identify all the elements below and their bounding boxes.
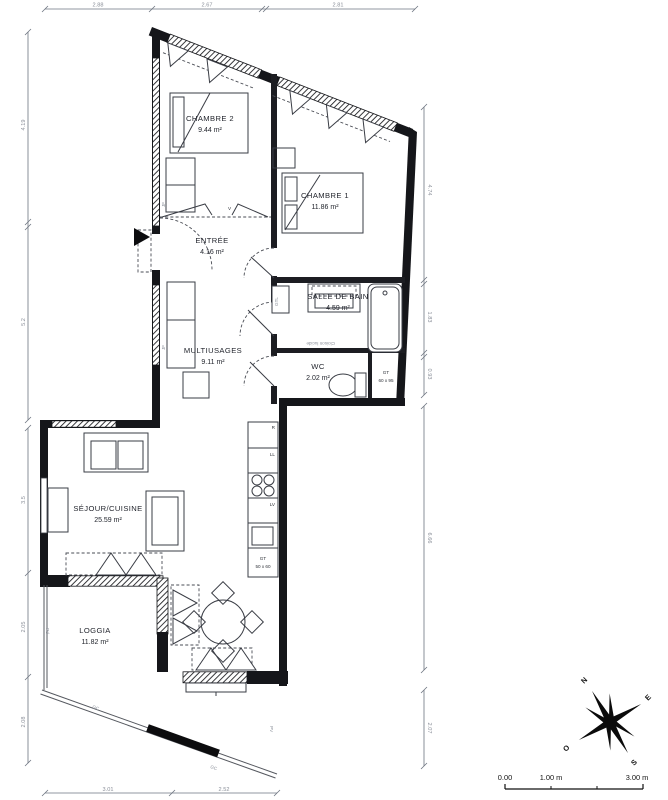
floor-plan-page: 2.88 2.67 2.81 4.19 5.2 3.5 2.05 2.08 4.…	[0, 0, 668, 800]
label-gt-wc: GT	[383, 370, 390, 375]
dim-bottom-1: 3.01	[103, 787, 114, 793]
armchair	[146, 491, 184, 551]
dim-right-2: 1.83	[426, 312, 432, 323]
dim-right-3: 0.93	[426, 369, 432, 380]
compass-e: E	[643, 693, 653, 703]
room-label-sejour: SÉJOUR/CUISINE	[73, 504, 142, 513]
label-jf-1: JF	[161, 202, 166, 207]
side-table	[48, 488, 68, 532]
dim-left-5: 2.08	[21, 717, 27, 728]
label-cloison: Cloison lucide	[306, 341, 335, 346]
dim-right-1: 4.74	[426, 185, 432, 196]
compass-rose-icon: N E S O	[561, 673, 659, 771]
label-washer: LL	[270, 452, 276, 457]
railing-solid-segment	[148, 728, 219, 754]
wc-fixtures: GT 60 x 95	[329, 370, 394, 397]
room-area-chambre1: 11.86 m²	[311, 204, 339, 211]
scale-bar: 0.00 1.00 m 3.00 m	[498, 773, 649, 789]
dim-top-3: 2.81	[333, 3, 344, 9]
compass-s: S	[629, 758, 639, 768]
floor-plan-drawing: 2.88 2.67 2.81 4.19 5.2 3.5 2.05 2.08 4.…	[0, 0, 668, 800]
dim-left-1: 4.19	[21, 120, 27, 131]
compass-o: O	[561, 743, 572, 754]
label-pd: Pd	[45, 628, 50, 634]
room-label-loggia: LOGGIA	[79, 626, 111, 635]
kitchen-counter: R LL LV GT 50 x 60	[248, 422, 278, 577]
dim-top-2: 2.67	[202, 3, 213, 9]
room-area-sejour: 25.59 m²	[94, 517, 122, 524]
dim-left-3: 3.5	[21, 496, 27, 504]
room-area-sdb: 4.59 m²	[326, 305, 350, 312]
label-gtl: GTL	[274, 297, 279, 306]
scale-zero: 0.00	[498, 773, 512, 782]
room-area-loggia: 11.82 m²	[81, 639, 109, 646]
room-label-entree: ENTRÉE	[195, 236, 228, 245]
room-label-sdb: SALLE DE BAIN	[307, 292, 368, 301]
entry-arrow-icon	[134, 228, 150, 246]
dim-left-4: 2.05	[21, 622, 27, 633]
room-label-multiusages: MULTIUSAGES	[184, 346, 242, 355]
label-v-door: V	[228, 206, 232, 211]
label-gc-2: GC	[210, 764, 219, 771]
room-label-chambre1: CHAMBRE 1	[301, 191, 349, 200]
bed-chambre1	[282, 173, 363, 233]
label-jf-2: JF	[161, 345, 166, 350]
scale-one: 1.00 m	[540, 773, 563, 782]
room-area-chambre2: 9.44 m²	[198, 127, 222, 134]
window-door-symbols: V	[66, 43, 390, 696]
table-multiusages	[183, 372, 209, 398]
label-pv: PV	[269, 726, 274, 733]
room-area-multiusages: 9.11 m²	[201, 359, 225, 366]
dim-bottom-2: 2.52	[219, 787, 230, 793]
bed-chambre2	[170, 93, 248, 153]
label-gt-wc-size: 60 x 95	[378, 378, 394, 383]
compass-n: N	[579, 675, 589, 685]
room-area-entree: 4.16 m²	[200, 249, 224, 256]
dim-left-2: 5.2	[21, 318, 27, 326]
sofa	[84, 433, 148, 472]
scale-three: 3.00 m	[626, 773, 649, 782]
dim-top-1: 2.88	[93, 3, 104, 9]
dining-set	[183, 582, 264, 663]
room-label-chambre2: CHAMBRE 2	[186, 114, 234, 123]
dim-right-5: 2.07	[426, 723, 432, 734]
room-area-wc: 2.02 m²	[306, 375, 330, 382]
cupboard-multiusages	[167, 282, 195, 368]
label-gt-kitchen: GT	[260, 556, 267, 561]
dim-right-4: 6.66	[426, 533, 432, 544]
label-gt-kitchen-size: 50 x 60	[255, 564, 271, 569]
room-label-wc: WC	[311, 362, 325, 371]
